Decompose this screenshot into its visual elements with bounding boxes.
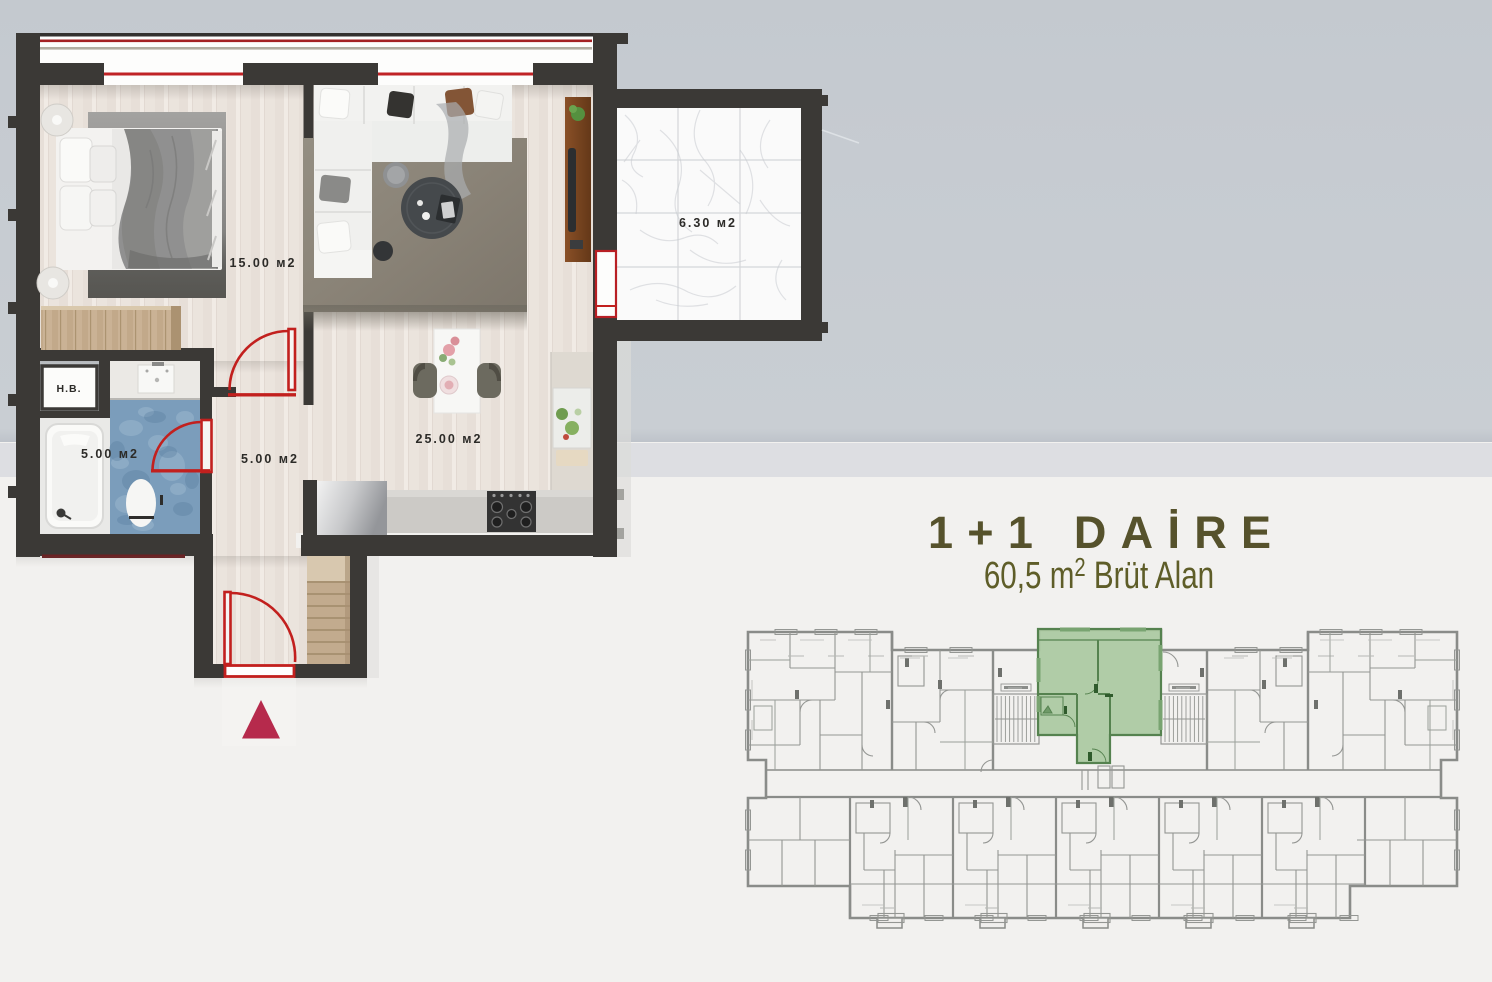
svg-text:1+1 DAİRE: 1+1 DAİRE bbox=[928, 507, 1284, 558]
svg-text:H.B.: H.B. bbox=[57, 383, 82, 395]
svg-text:25.00 м2: 25.00 м2 bbox=[416, 432, 483, 446]
svg-text:5.00 м2: 5.00 м2 bbox=[241, 452, 299, 466]
svg-text:5.00 м2: 5.00 м2 bbox=[81, 447, 139, 461]
svg-text:15.00 м2: 15.00 м2 bbox=[230, 256, 297, 270]
svg-text:6.30 м2: 6.30 м2 bbox=[679, 216, 737, 230]
svg-text:60,5 m2 Brüt Alan: 60,5 m2 Brüt Alan bbox=[984, 553, 1214, 597]
